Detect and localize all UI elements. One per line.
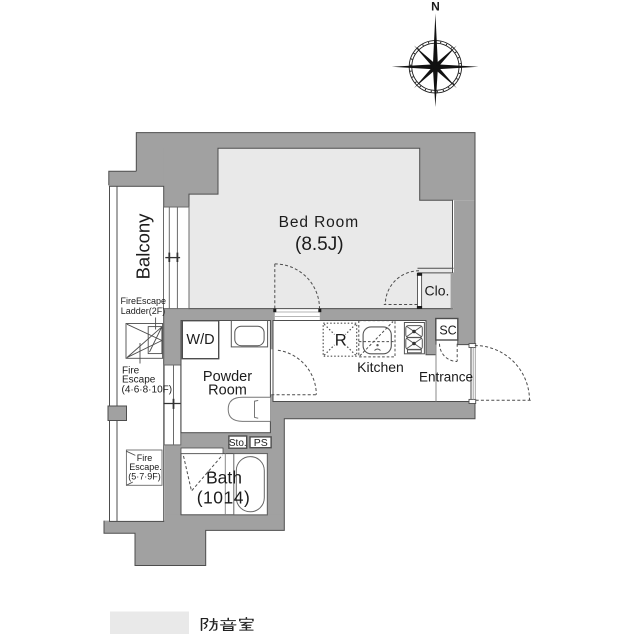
svg-text:Kitchen: Kitchen [357, 359, 404, 375]
svg-text:R: R [335, 331, 347, 349]
svg-text:Entrance: Entrance [419, 370, 473, 385]
svg-text:(5·7·9F): (5·7·9F) [128, 472, 161, 482]
svg-text:SC: SC [439, 324, 456, 338]
svg-text:(1014): (1014) [197, 488, 251, 508]
svg-text:Balcony: Balcony [133, 213, 154, 280]
svg-text:Room: Room [208, 383, 247, 399]
svg-text:W/D: W/D [186, 332, 214, 348]
svg-text:FireEscape: FireEscape [121, 296, 167, 306]
svg-text:PS: PS [254, 437, 268, 449]
svg-text:N: N [431, 0, 440, 14]
svg-text:Escape.: Escape. [129, 462, 162, 472]
svg-text:(8.5J): (8.5J) [295, 234, 344, 255]
svg-text:Bath: Bath [206, 468, 242, 488]
svg-text:Sto.: Sto. [229, 438, 247, 449]
svg-text:(4·6·8·10F): (4·6·8·10F) [122, 385, 173, 396]
svg-text:Ladder(2F): Ladder(2F) [121, 306, 166, 316]
svg-text:Clo.: Clo. [425, 283, 450, 299]
svg-text:Bed Room: Bed Room [279, 214, 359, 231]
